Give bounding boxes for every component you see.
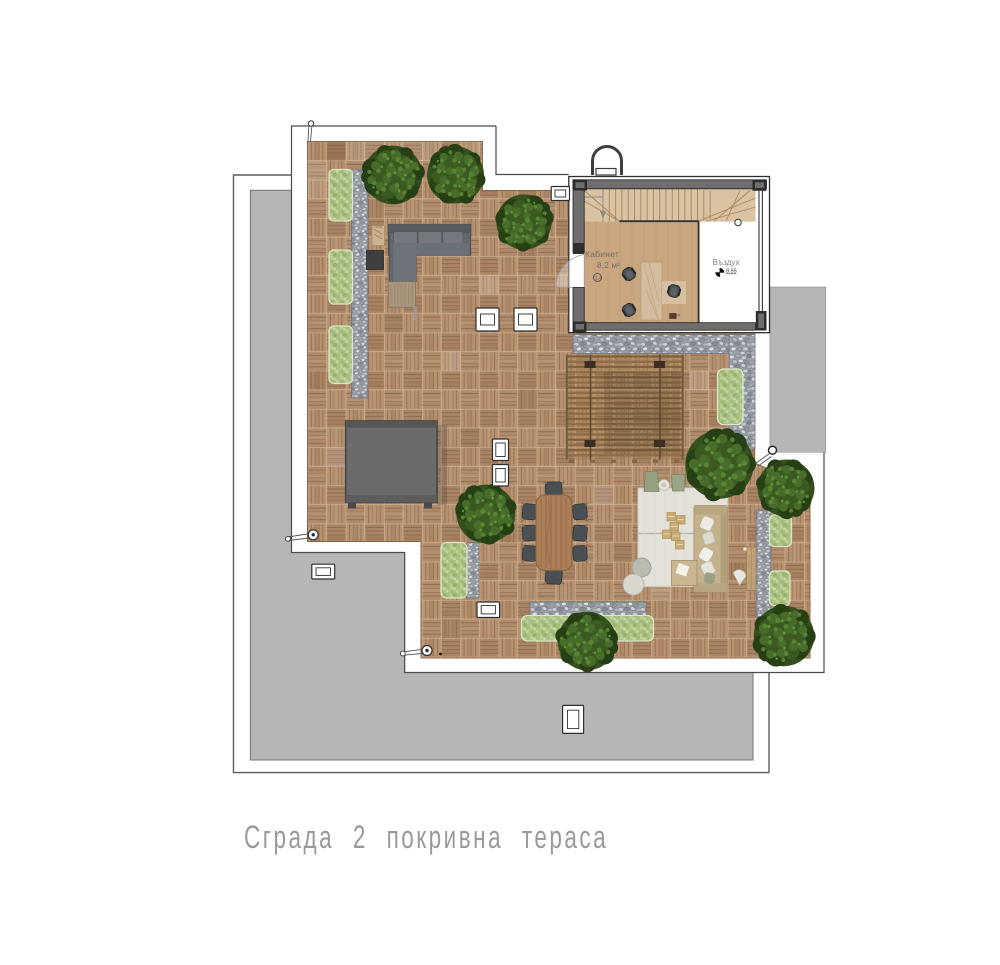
svg-text:Въздух: Въздух (713, 258, 740, 267)
svg-text:Сграда 2 покривна тераса: Сграда 2 покривна тераса (244, 819, 608, 855)
svg-text:Кабинет: Кабинет (585, 249, 619, 259)
svg-text:14: 14 (595, 276, 601, 282)
svg-text:8,2 м²: 8,2 м² (597, 261, 620, 270)
